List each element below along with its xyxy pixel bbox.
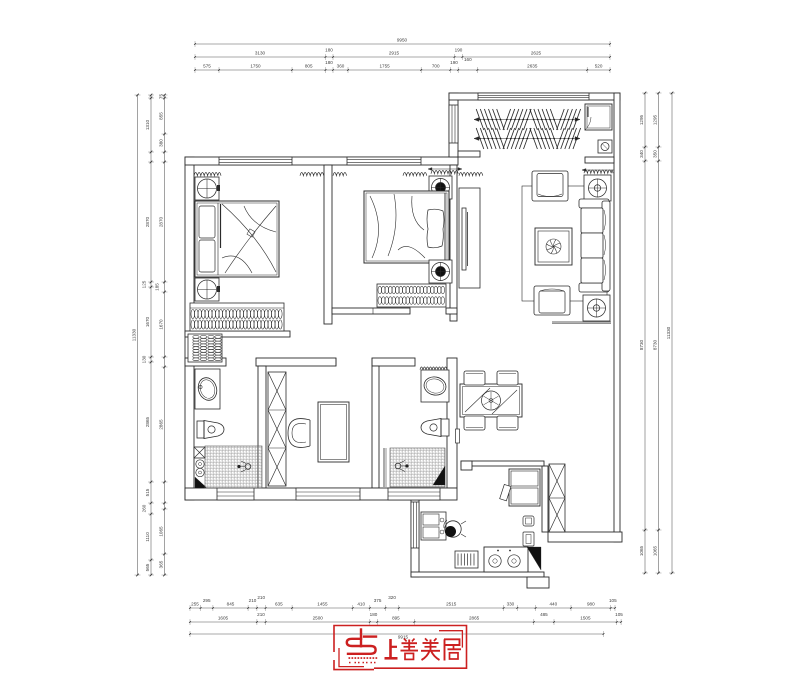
svg-text:2635: 2635 [527, 64, 538, 69]
svg-text:360: 360 [337, 64, 345, 69]
svg-text:1065: 1065 [653, 545, 658, 556]
svg-text:2915: 2915 [389, 51, 400, 56]
svg-text:130: 130 [142, 355, 147, 363]
svg-text:190: 190 [450, 60, 458, 65]
svg-text:1755: 1755 [379, 64, 390, 69]
svg-text:255: 255 [191, 602, 199, 607]
svg-text:1295: 1295 [653, 114, 658, 125]
svg-text:845: 845 [227, 602, 235, 607]
svg-text:485: 485 [540, 612, 548, 617]
svg-text:295: 295 [203, 598, 211, 603]
svg-text:1110: 1110 [145, 532, 150, 542]
svg-text:895: 895 [392, 616, 400, 621]
svg-text:190: 190 [455, 48, 463, 53]
svg-text:125: 125 [142, 280, 147, 288]
svg-text:180: 180 [325, 60, 333, 65]
svg-text:2865: 2865 [145, 416, 150, 427]
svg-text:380: 380 [159, 139, 164, 147]
svg-text:180: 180 [325, 48, 333, 53]
svg-text:9950: 9950 [397, 38, 408, 43]
svg-text:410: 410 [357, 602, 365, 607]
svg-text:2625: 2625 [531, 51, 542, 56]
svg-text:1670: 1670 [145, 316, 150, 327]
svg-text:635: 635 [275, 602, 283, 607]
svg-text:210: 210 [257, 595, 265, 600]
svg-text:105: 105 [609, 598, 617, 603]
svg-text:1670: 1670 [159, 319, 164, 330]
svg-text:855: 855 [159, 112, 164, 120]
svg-text:160: 160 [464, 57, 472, 62]
svg-text:11330: 11330 [666, 326, 671, 339]
svg-text:1750: 1750 [250, 64, 261, 69]
svg-text:2865: 2865 [469, 616, 480, 621]
svg-text:575: 575 [203, 64, 211, 69]
svg-text:2870: 2870 [145, 216, 150, 227]
svg-text:1065: 1065 [159, 526, 164, 537]
svg-text:440: 440 [549, 602, 557, 607]
svg-text:1605: 1605 [218, 616, 229, 621]
svg-text:1505: 1505 [580, 616, 591, 621]
svg-text:980: 980 [587, 602, 595, 607]
svg-text:1065: 1065 [639, 545, 644, 556]
svg-text:520: 520 [595, 64, 603, 69]
svg-text:9915: 9915 [398, 635, 409, 640]
svg-text:260: 260 [142, 504, 147, 512]
svg-text:210: 210 [257, 612, 265, 617]
svg-text:185: 185 [155, 283, 160, 291]
svg-text:2870: 2870 [159, 216, 164, 227]
svg-text:515: 515 [145, 488, 150, 496]
svg-text:375: 375 [374, 598, 382, 603]
svg-text:1295: 1295 [639, 114, 644, 125]
svg-text:805: 805 [305, 64, 313, 69]
svg-text:2500: 2500 [313, 616, 324, 621]
svg-text:1310: 1310 [145, 119, 150, 130]
svg-text:350: 350 [653, 150, 658, 158]
svg-text:700: 700 [432, 64, 440, 69]
svg-text:1455: 1455 [317, 602, 328, 607]
svg-text:2515: 2515 [446, 602, 457, 607]
svg-text:2865: 2865 [159, 419, 164, 430]
svg-text:320: 320 [388, 595, 396, 600]
svg-text:75: 75 [159, 94, 164, 100]
svg-text:330: 330 [507, 602, 515, 607]
svg-text:3130: 3130 [255, 51, 266, 56]
svg-text:8730: 8730 [639, 339, 644, 350]
svg-text:105: 105 [615, 612, 623, 617]
svg-text:210: 210 [249, 598, 257, 603]
svg-text:8730: 8730 [653, 339, 658, 350]
svg-text:565: 565 [145, 563, 150, 571]
svg-text:365: 365 [159, 560, 164, 568]
svg-text:340: 340 [639, 150, 644, 158]
svg-text:180: 180 [370, 612, 378, 617]
svg-text:11330: 11330 [132, 328, 137, 341]
